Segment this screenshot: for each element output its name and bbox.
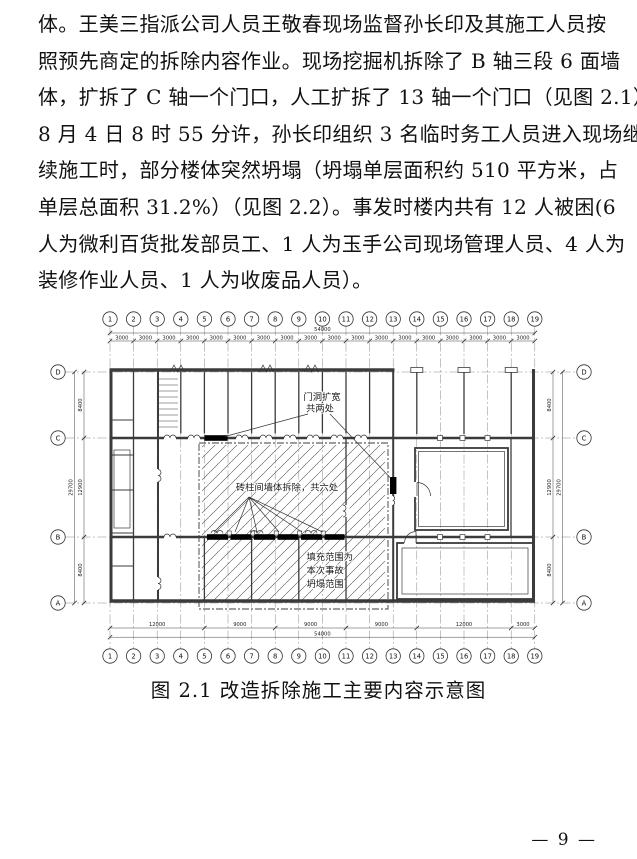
column-axis-bubble-top-label: 3 (155, 315, 159, 323)
dim-top-bay: 3000 (516, 335, 529, 341)
row-axis-bubble-left-label: A (56, 599, 61, 607)
dim-right-total: 29700 (557, 479, 563, 496)
dim-top-bay: 3000 (328, 335, 341, 341)
body-line: 装修作业人员、1 人为收废品人员）。 (38, 262, 601, 299)
column-axis-bubble-top-label: 2 (131, 315, 135, 323)
column-axis-bubble-bottom-label: 13 (389, 652, 398, 660)
document-page: 体。王美三指派公司人员王敬春现场监督孙长印及其施工人员按 照预先商定的拆除内容作… (0, 0, 637, 859)
dim-left-segment: 8400 (78, 398, 84, 411)
dim-bottom-segment: 9000 (233, 622, 246, 628)
row-axis-bubble-right-label: D (581, 368, 586, 376)
demolished-wall-segment (254, 534, 275, 540)
row-axis-bubble-left-label: B (56, 533, 61, 541)
body-paragraph: 体。王美三指派公司人员王敬春现场监督孙长印及其施工人员按 照预先商定的拆除内容作… (38, 6, 601, 299)
column-axis-bubble-bottom-label: 18 (507, 652, 516, 660)
column-axis-bubble-bottom-label: 5 (202, 652, 206, 660)
body-line: 8 月 4 日 8 时 55 分许，孙长印组织 3 名临时务工人员进入现场继 (38, 116, 601, 153)
annotation-collapse-fill: 填充范围为 (307, 551, 354, 563)
dim-top-bay: 3000 (139, 335, 152, 341)
column-axis-bubble-top-label: 18 (507, 315, 516, 323)
column-axis-bubble-top-label: 4 (179, 315, 183, 323)
column-axis-bubble-top-label: 6 (226, 315, 230, 323)
body-line: 体。王美三指派公司人员王敬春现场监督孙长印及其施工人员按 (38, 6, 601, 43)
column-axis-bubble-bottom-label: 12 (365, 652, 374, 660)
annotation-wall-demolition: 砖柱间墙体拆除，共六处 (236, 482, 338, 494)
column-axis-bubble-bottom-label: 14 (412, 652, 421, 660)
demolished-wall-segment (231, 534, 252, 540)
column-axis-bubble-bottom-label: 3 (155, 652, 159, 660)
column-axis-bubble-top-label: 17 (483, 315, 492, 323)
body-line: 照预先商定的拆除内容作业。现场挖掘机拆除了 B 轴三段 6 面墙 (38, 43, 601, 80)
row-axis-bubble-right-label: A (582, 599, 587, 607)
dim-top-bay: 3000 (186, 335, 199, 341)
column-axis-bubble-bottom-label: 4 (179, 652, 183, 660)
column-axis-bubble-bottom-label: 2 (131, 652, 135, 660)
annotation-door-widen: 门洞扩宽 (303, 391, 340, 403)
dim-top-bay: 3000 (375, 335, 388, 341)
column-axis-bubble-bottom-label: 7 (249, 652, 253, 660)
dim-top-bay: 3000 (469, 335, 482, 341)
column-axis-bubble-bottom-label: 11 (342, 652, 351, 660)
demolished-wall-segment (325, 534, 345, 540)
column-axis-bubble-top-label: 11 (342, 315, 351, 323)
demolished-wall-segment (207, 534, 228, 540)
dim-top-total: 54000 (314, 327, 331, 333)
column-axis-bubble-bottom-label: 10 (318, 652, 327, 660)
column-axis-bubble-bottom-label: 8 (273, 652, 277, 660)
row-axis-bubble-right-label: B (582, 533, 587, 541)
column-axis-bubble-top-label: 12 (365, 315, 374, 323)
dim-top-bay: 3000 (115, 335, 128, 341)
dim-right-segment: 12900 (547, 479, 553, 496)
widened-door-c-axis (204, 435, 227, 441)
column-axis-bubble-top-label: 8 (273, 315, 277, 323)
column-axis-bubble-bottom-label: 17 (483, 652, 492, 660)
column-axis-bubble-bottom-label: 1 (108, 652, 112, 660)
dim-bottom-segment: 12000 (456, 622, 473, 628)
dim-top-bay: 3000 (162, 335, 175, 341)
dim-bottom-segment: 12000 (149, 622, 166, 628)
row-axis-bubble-left-label: D (55, 368, 60, 376)
dim-top-bay: 3000 (257, 335, 270, 341)
body-line: 体，扩拆了 C 轴一个门口，人工扩拆了 13 轴一个门口（见图 2.1）。 (38, 79, 601, 116)
dim-top-bay: 3000 (493, 335, 506, 341)
annotation-collapse-fill: 本次事故 (307, 565, 344, 577)
collapse-hatch-area (202, 445, 385, 600)
column-axis-bubble-top-label: 14 (412, 315, 421, 323)
body-line: 单层总面积 31.2%）（见图 2.2）。事发时楼内共有 12 人被困(6 (38, 189, 601, 226)
dim-top-bay: 3000 (446, 335, 459, 341)
dim-bottom-total: 54000 (314, 631, 331, 637)
dim-left-total: 29700 (69, 479, 75, 496)
dim-top-bay: 3000 (233, 335, 246, 341)
stair-treads (159, 379, 178, 427)
floor-plan-diagram: 3000300030003000300030003000300030003000… (30, 298, 620, 670)
dim-top-bay: 3000 (304, 335, 317, 341)
annotation-collapse-fill: 坍塌范围 (307, 578, 344, 590)
dim-left-segment: 12900 (78, 479, 84, 496)
dim-bottom-segment: 9000 (304, 622, 317, 628)
column-axis-bubble-top-label: 9 (297, 315, 301, 323)
figure-caption: 图 2.1 改造拆除施工主要内容示意图 (0, 674, 637, 703)
column-axis-bubble-top-label: 13 (389, 315, 398, 323)
page-number: — 9 — (531, 830, 597, 850)
column-axis-bubble-top-label: 16 (460, 315, 469, 323)
dim-bottom-segment: 3000 (516, 622, 529, 628)
widened-door-axis-13 (390, 477, 396, 494)
dim-right-segment: 8400 (547, 563, 553, 576)
dim-top-bay: 3000 (398, 335, 411, 341)
dim-top-bay: 3000 (210, 335, 223, 341)
dim-left-segment: 8400 (78, 563, 84, 576)
row-axis-bubble-left-label: C (56, 434, 61, 442)
row-axis-bubble-right-label: C (582, 434, 587, 442)
dim-right-segment: 8400 (547, 398, 553, 411)
column-axis-bubble-top-label: 19 (530, 315, 539, 323)
column-axis-bubble-bottom-label: 19 (530, 652, 539, 660)
column-axis-bubble-bottom-label: 9 (297, 652, 301, 660)
dim-top-bay: 3000 (280, 335, 293, 341)
column-axis-bubble-top-label: 1 (108, 315, 112, 323)
dim-top-bay: 3000 (422, 335, 435, 341)
column-axis-bubble-top-label: 10 (318, 315, 327, 323)
column-axis-bubble-top-label: 7 (249, 315, 253, 323)
column-axis-bubble-top-label: 15 (436, 315, 445, 323)
body-line: 续施工时，部分楼体突然坍塌（坍塌单层面积约 510 平方米，占 (38, 152, 601, 189)
column-axis-bubble-top-label: 5 (202, 315, 206, 323)
demolished-wall-segment (278, 534, 299, 540)
dim-top-bay: 3000 (351, 335, 364, 341)
column-axis-bubble-bottom-label: 6 (226, 652, 230, 660)
dim-bottom-segment: 9000 (375, 622, 388, 628)
body-line: 人为微利百货批发部员工、1 人为玉手公司现场管理人员、4 人为 (38, 226, 601, 263)
column-axis-bubble-bottom-label: 15 (436, 652, 445, 660)
annotation-door-widen: 共两处 (306, 403, 334, 415)
column-axis-bubble-bottom-label: 16 (460, 652, 469, 660)
demolished-wall-segment (301, 534, 322, 540)
